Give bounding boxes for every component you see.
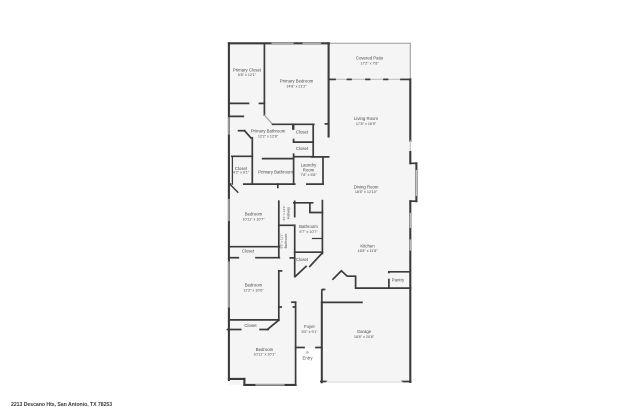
svg-text:Closet: Closet: [242, 249, 255, 254]
svg-text:Closet: Closet: [296, 130, 309, 135]
svg-text:16'8" x 11'8": 16'8" x 11'8": [358, 249, 379, 253]
svg-text:Foyer: Foyer: [304, 324, 316, 329]
svg-text:Hallway: Hallway: [286, 207, 290, 219]
svg-text:4'2" x 6'1": 4'2" x 6'1": [233, 171, 250, 175]
svg-text:Dining Room: Dining Room: [354, 185, 379, 190]
svg-text:10'11" x 10'1": 10'11" x 10'1": [254, 353, 277, 357]
svg-text:Primary Bedroom: Primary Bedroom: [280, 79, 314, 84]
svg-text:Closet: Closet: [296, 146, 309, 151]
svg-text:Bathroom: Bathroom: [299, 224, 318, 229]
svg-text:18'8" x 12'10": 18'8" x 12'10": [355, 190, 378, 194]
svg-text:12'2" x 12'8": 12'2" x 12'8": [258, 134, 279, 138]
svg-text:Bedroom: Bedroom: [245, 212, 263, 217]
svg-text:2213 Descano Hts, San Antonio,: 2213 Descano Hts, San Antonio, TX 78253: [11, 402, 112, 407]
svg-text:17'8" x 16'9": 17'8" x 16'9": [356, 122, 377, 126]
svg-text:14'8" x 21'2": 14'8" x 21'2": [286, 84, 307, 88]
svg-text:6'8" x 12'1": 6'8" x 12'1": [238, 73, 257, 77]
svg-text:Bedroom: Bedroom: [256, 347, 274, 352]
svg-text:7'8" x 5'8": 7'8" x 5'8": [300, 173, 317, 177]
svg-text:Closet: Closet: [296, 257, 309, 262]
svg-text:10'11" x 10'7": 10'11" x 10'7": [243, 217, 266, 221]
svg-text:Kitchen: Kitchen: [360, 244, 375, 249]
svg-text:Bathroom: Bathroom: [284, 233, 288, 248]
svg-text:Garage: Garage: [357, 329, 372, 334]
svg-text:Bedroom: Bedroom: [245, 283, 263, 288]
svg-text:Room: Room: [303, 167, 315, 172]
svg-text:Covered Patio: Covered Patio: [356, 56, 384, 61]
svg-text:3'1" x 14'1": 3'1" x 14'1": [282, 205, 286, 220]
svg-text:Primary Closet: Primary Closet: [233, 68, 262, 73]
svg-text:17'2" x 7'8": 17'2" x 7'8": [360, 61, 379, 65]
svg-text:Entry: Entry: [302, 356, 313, 361]
svg-text:9'7" x 10'7": 9'7" x 10'7": [299, 230, 318, 234]
svg-text:Closet: Closet: [244, 323, 257, 328]
svg-text:5'5" x 11'1": 5'5" x 11'1": [280, 233, 284, 248]
svg-text:Living Room: Living Room: [354, 116, 378, 121]
svg-text:Primary Bathroom: Primary Bathroom: [258, 170, 293, 175]
svg-text:18'8" x 20'8": 18'8" x 20'8": [354, 335, 375, 339]
svg-text:5'5" x 9'1": 5'5" x 9'1": [301, 330, 318, 334]
svg-text:Primary Bathroom: Primary Bathroom: [251, 129, 286, 134]
svg-text:11'2" x 10'0": 11'2" x 10'0": [244, 288, 265, 292]
svg-text:Pantry: Pantry: [392, 278, 405, 283]
